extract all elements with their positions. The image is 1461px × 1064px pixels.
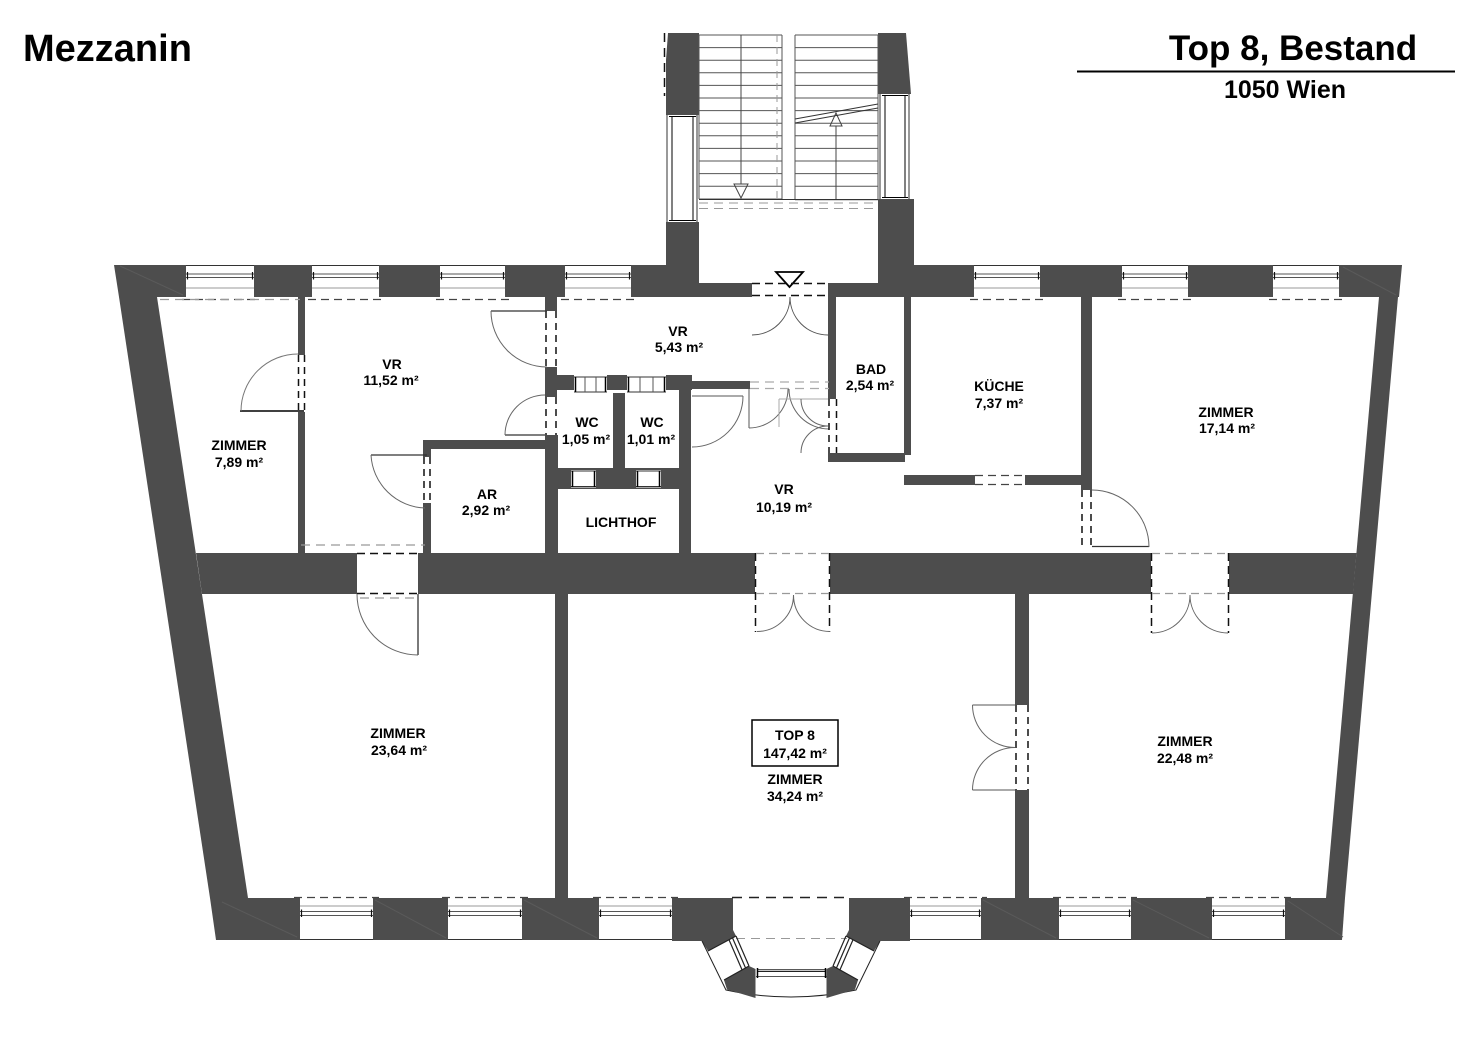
svg-text:BAD: BAD: [856, 361, 886, 377]
svg-text:VR: VR: [382, 356, 401, 372]
svg-text:LICHTHOF: LICHTHOF: [586, 514, 657, 530]
svg-text:10,19 m²: 10,19 m²: [756, 499, 812, 515]
svg-text:11,52 m²: 11,52 m²: [363, 372, 419, 388]
svg-text:ZIMMER: ZIMMER: [370, 725, 425, 741]
svg-text:34,24 m²: 34,24 m²: [767, 788, 823, 804]
svg-text:17,14 m²: 17,14 m²: [1199, 420, 1255, 436]
svg-text:7,37 m²: 7,37 m²: [975, 395, 1024, 411]
svg-text:1,01 m²: 1,01 m²: [627, 431, 676, 447]
svg-text:WC: WC: [575, 414, 598, 430]
svg-text:WC: WC: [640, 414, 663, 430]
svg-text:5,43 m²: 5,43 m²: [655, 339, 704, 355]
svg-text:22,48 m²: 22,48 m²: [1157, 750, 1213, 766]
svg-text:Mezzanin: Mezzanin: [23, 28, 192, 70]
svg-text:1,05 m²: 1,05 m²: [562, 431, 611, 447]
svg-text:VR: VR: [668, 323, 687, 339]
svg-text:ZIMMER: ZIMMER: [211, 437, 266, 453]
svg-text:23,64 m²: 23,64 m²: [371, 742, 427, 758]
svg-text:ZIMMER: ZIMMER: [1198, 404, 1253, 420]
svg-text:2,92 m²: 2,92 m²: [462, 502, 511, 518]
svg-text:VR: VR: [774, 481, 793, 497]
svg-text:KÜCHE: KÜCHE: [974, 378, 1024, 394]
svg-text:2,54 m²: 2,54 m²: [846, 377, 895, 393]
svg-text:AR: AR: [477, 486, 497, 502]
svg-text:147,42 m²: 147,42 m²: [763, 745, 827, 761]
svg-text:ZIMMER: ZIMMER: [767, 771, 822, 787]
svg-text:ZIMMER: ZIMMER: [1157, 733, 1212, 749]
svg-text:Top 8, Bestand: Top 8, Bestand: [1169, 29, 1417, 68]
svg-text:7,89 m²: 7,89 m²: [215, 454, 264, 470]
svg-text:1050 Wien: 1050 Wien: [1224, 76, 1346, 104]
svg-text:TOP 8: TOP 8: [775, 727, 815, 743]
